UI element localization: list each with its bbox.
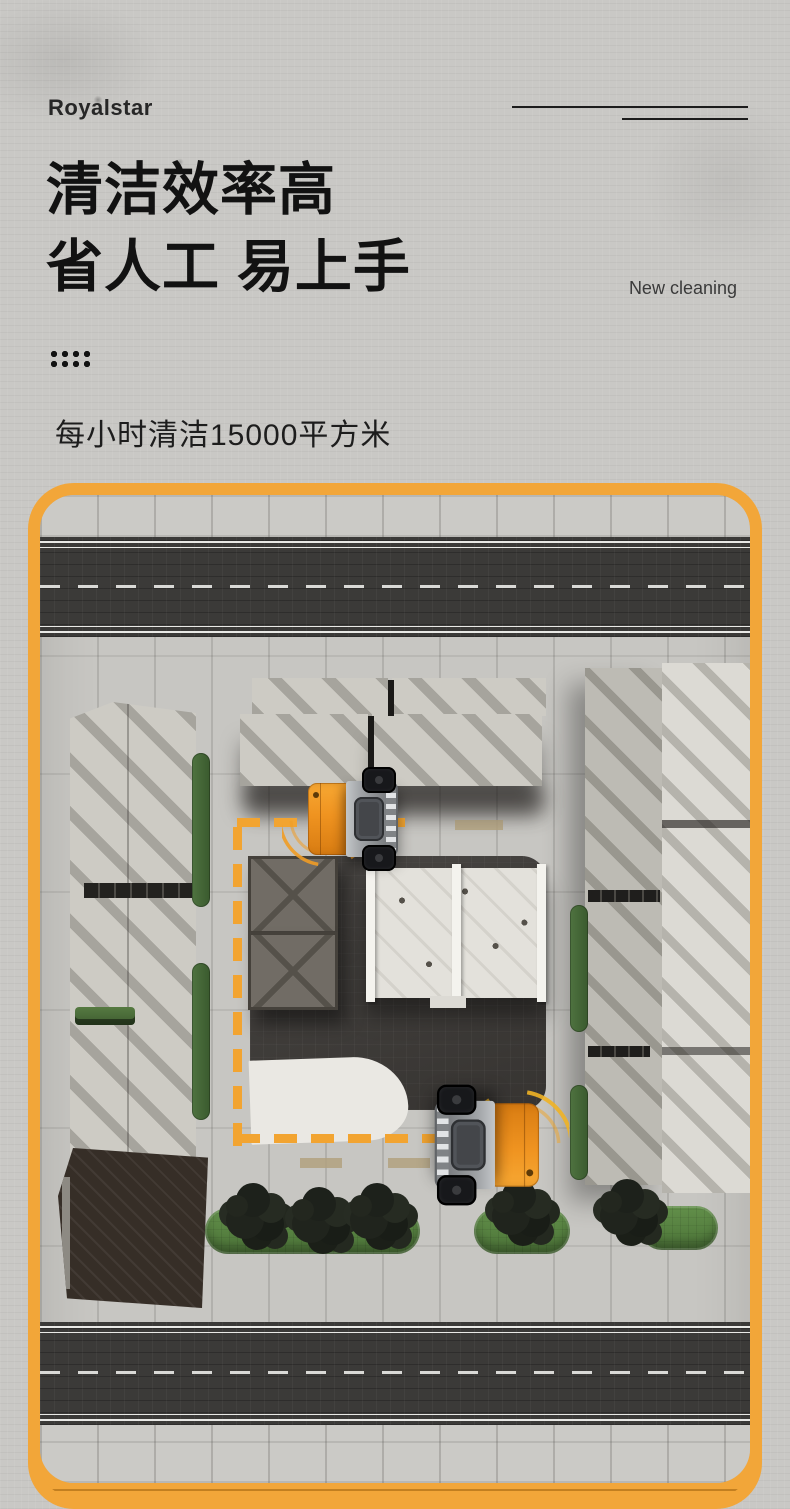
green-strip xyxy=(640,1206,718,1250)
top-building-back xyxy=(392,678,546,716)
promo-page: { "brand": { "logo_text": "Royalstar" },… xyxy=(0,0,790,1509)
top-sidewalk xyxy=(40,495,750,537)
tree xyxy=(226,1195,248,1217)
cleaning-route-dash-left xyxy=(233,827,242,1147)
card-bottom-divider xyxy=(50,1489,740,1491)
spec-text: 每小时清洁15000平方米 xyxy=(55,410,391,454)
left-building-window-band xyxy=(84,883,196,898)
building-gap-post xyxy=(388,680,394,716)
hedge xyxy=(192,963,210,1120)
vehicle-orange-cab xyxy=(493,1103,539,1187)
vehicle-wheel xyxy=(437,1175,476,1205)
green-strip xyxy=(474,1208,570,1254)
hedge xyxy=(570,1085,588,1180)
curved-white-path xyxy=(249,1055,410,1144)
bottom-road xyxy=(40,1322,750,1425)
right-striped-building-inner xyxy=(585,668,662,1185)
brand-logo: Royalstar xyxy=(48,95,153,121)
tagline-en: New cleaning xyxy=(629,278,737,299)
street-scene-illustration xyxy=(40,495,750,1483)
white-pavilion xyxy=(366,868,546,998)
right-building-window-band xyxy=(588,1046,650,1057)
hedge xyxy=(570,905,588,1032)
hedge xyxy=(192,753,210,907)
illustration-card xyxy=(28,483,762,1509)
tree xyxy=(292,1199,314,1221)
right-building-gap xyxy=(662,1047,750,1055)
lane-dash-line xyxy=(40,1371,750,1374)
left-building-planter xyxy=(75,1007,135,1025)
right-building-window-band xyxy=(588,890,660,902)
lane-dash-line xyxy=(40,585,750,588)
pavement-marking xyxy=(455,820,503,830)
vehicle-orange-cab xyxy=(308,783,348,855)
bottom-sidewalk xyxy=(40,1425,750,1483)
vehicle-wheel xyxy=(437,1085,476,1115)
tree xyxy=(600,1191,622,1213)
vehicle-wheel xyxy=(362,767,396,793)
dots-grid-icon xyxy=(50,350,91,370)
sweeper-vehicle-2 xyxy=(430,1085,546,1206)
right-building-gap xyxy=(662,820,750,828)
tree xyxy=(350,1195,372,1217)
storage-crate xyxy=(248,932,338,1010)
decor-line-top xyxy=(512,106,748,108)
decor-line-bottom xyxy=(622,118,748,120)
pavement-marking xyxy=(300,1158,342,1168)
top-building-back xyxy=(252,678,388,716)
pavement-marking xyxy=(388,1158,430,1168)
right-striped-building-outer xyxy=(662,663,750,1193)
top-road xyxy=(40,537,750,637)
dark-roof-building xyxy=(58,1148,208,1308)
vehicle-wheel xyxy=(362,845,396,871)
white-pavilion-step xyxy=(430,996,466,1008)
sweeper-vehicle-1 xyxy=(302,767,402,871)
page-title: 清洁效率高 省人工 易上手 xyxy=(46,152,411,306)
